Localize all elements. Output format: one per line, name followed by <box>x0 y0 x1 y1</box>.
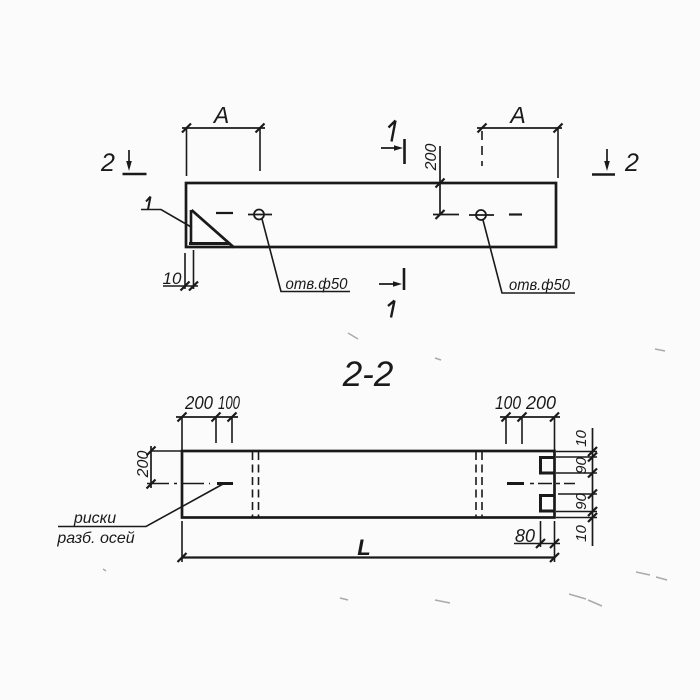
svg-text:риски: риски <box>73 510 116 527</box>
svg-text:10: 10 <box>573 430 590 447</box>
svg-text:200: 200 <box>184 393 213 413</box>
svg-text:90: 90 <box>573 493 590 510</box>
svg-text:2: 2 <box>100 149 115 177</box>
svg-text:90: 90 <box>573 457 590 474</box>
svg-text:100: 100 <box>495 393 521 413</box>
svg-text:10: 10 <box>573 525 590 542</box>
svg-text:200: 200 <box>135 451 152 479</box>
svg-text:A: A <box>212 102 229 128</box>
svg-text:2-2: 2-2 <box>342 355 394 394</box>
svg-text:отв.ф50: отв.ф50 <box>509 277 570 294</box>
svg-text:L: L <box>357 535 370 560</box>
svg-text:200: 200 <box>423 144 440 172</box>
svg-text:2: 2 <box>624 149 639 177</box>
svg-text:A: A <box>508 102 525 128</box>
svg-text:отв.ф50: отв.ф50 <box>286 276 348 293</box>
svg-text:разб. осей: разб. осей <box>56 530 134 547</box>
svg-text:80: 80 <box>515 526 535 546</box>
svg-text:10: 10 <box>163 269 182 288</box>
svg-text:200: 200 <box>525 393 556 413</box>
svg-text:100: 100 <box>218 393 240 413</box>
